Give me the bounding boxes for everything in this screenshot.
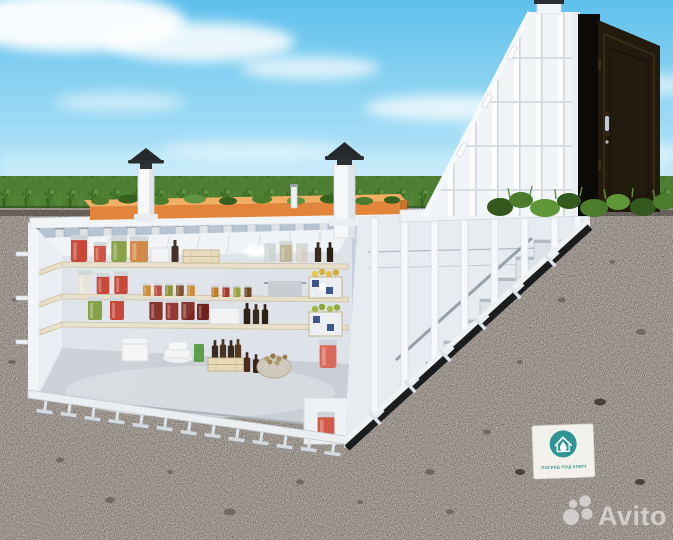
- jar-light: [296, 243, 308, 262]
- green-canister: [194, 344, 204, 362]
- spice-jar: [233, 285, 241, 297]
- small-stub-pipe: [290, 184, 298, 208]
- vendor-badge: ПОГРЕБ ПОД КЛЮЧ: [532, 424, 595, 479]
- avito-watermark-text: Avito: [598, 501, 667, 531]
- door-panel: [598, 20, 660, 212]
- spice-jar: [211, 285, 219, 297]
- spice-jar: [222, 285, 230, 297]
- door-handle: [605, 116, 609, 131]
- listing-photo: ПОГРЕБ ПОД КЛЮЧ Avito: [0, 0, 673, 540]
- outer-left-wall: [28, 222, 38, 396]
- ceiling-light-lens: [246, 247, 266, 256]
- door-hinge: [598, 60, 601, 70]
- door-opening: [578, 14, 600, 216]
- door-hinge: [598, 160, 601, 170]
- cellar-render-scene: ПОГРЕБ ПОД КЛЮЧ Avito: [0, 0, 673, 540]
- white-crate: [210, 308, 240, 324]
- chimney: [534, 0, 564, 14]
- keyhole: [605, 140, 608, 143]
- jar-pink-compote: [319, 340, 337, 368]
- cooking-pot: [264, 276, 306, 297]
- jar-light: [264, 243, 276, 262]
- spice-jar: [244, 285, 252, 297]
- jar-light: [279, 241, 293, 262]
